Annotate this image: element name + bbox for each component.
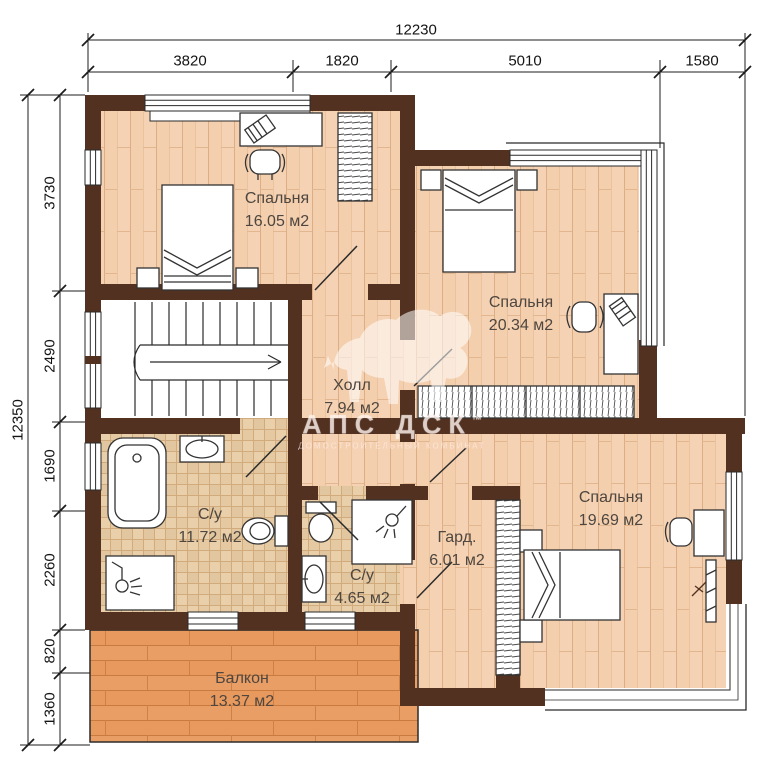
room-label-balcony: Балкон 13.37 м2	[210, 667, 274, 713]
wall	[288, 486, 318, 500]
wall	[85, 418, 240, 434]
dim-left-segment-3: 2260	[42, 553, 59, 586]
room-label-bedroom-1: Спальня 16.05 м2	[245, 187, 309, 233]
window-bedroom-3-east	[726, 472, 742, 560]
window-left-3	[85, 443, 101, 490]
room-label-bathroom-1: С/у 11.72 м2	[178, 503, 241, 549]
window-left-1	[85, 150, 101, 185]
room-name: Холл	[324, 374, 379, 397]
floor-stairs	[101, 300, 288, 418]
room-area: 7.94 м2	[324, 397, 379, 420]
wall	[415, 688, 545, 706]
nightstand-icon	[520, 620, 542, 642]
dim-top-segment-2: 5010	[508, 53, 541, 70]
nightstand-icon	[236, 268, 258, 288]
dim-top-segment-3: 1580	[685, 53, 718, 70]
room-name: Балкон	[210, 667, 274, 690]
nightstand-icon	[517, 170, 537, 190]
bathtub-icon	[108, 438, 166, 528]
floor-patch	[400, 442, 415, 484]
wardrobe-icon	[496, 500, 520, 675]
bed-icon	[524, 550, 620, 620]
toilet-icon	[306, 502, 336, 542]
wall	[472, 486, 520, 500]
wall	[366, 486, 428, 500]
room-label-bedroom-2: Спальня 20.34 м2	[489, 291, 553, 337]
window-left-2	[85, 312, 101, 408]
wardrobe-icon	[338, 113, 372, 201]
room-label-hall: Холл 7.94 м2	[324, 374, 379, 420]
wall	[288, 300, 302, 630]
room-area: 13.37 м2	[210, 690, 274, 713]
sink-icon	[180, 436, 224, 462]
wall	[415, 418, 745, 434]
nightstand-icon	[421, 170, 441, 190]
sink-icon	[302, 556, 326, 602]
room-label-wardrobe: Гард. 6.01 м2	[429, 526, 484, 572]
dim-top-segment-1: 1820	[325, 53, 358, 70]
dim-top-overall: 12230	[395, 22, 437, 39]
wall	[288, 418, 400, 434]
wardrobe-icon	[418, 386, 634, 418]
dim-left-segment-5: 1360	[42, 692, 59, 725]
nightstand-icon	[520, 530, 542, 552]
room-label-bathroom-2: С/у 4.65 м2	[334, 564, 389, 610]
room-area: 4.65 м2	[334, 587, 389, 610]
room-name: Гард.	[429, 526, 484, 549]
nightstand-icon	[137, 268, 159, 288]
wall	[400, 95, 415, 340]
dim-left-segment-2: 1690	[42, 449, 59, 482]
bed-icon	[443, 170, 515, 272]
room-name: Спальня	[245, 187, 309, 210]
room-name: Спальня	[489, 291, 553, 314]
window-bath-south-2	[305, 612, 355, 630]
room-area: 16.05 м2	[245, 210, 309, 233]
shower-icon	[352, 500, 412, 564]
bed-icon	[162, 185, 233, 290]
radiator-icon	[706, 560, 716, 622]
plan-drawing	[0, 0, 773, 782]
room-area: 6.01 м2	[429, 549, 484, 572]
floor-patch	[240, 418, 288, 434]
wall	[496, 675, 520, 689]
floor-plan: Спальня 16.05 м2 Спальня 20.34 м2 Холл 7…	[0, 0, 773, 782]
floor-patch	[312, 284, 368, 300]
room-name: С/у	[334, 564, 389, 587]
dim-left-overall: 12350	[10, 399, 27, 441]
wall	[85, 612, 415, 630]
shower-icon	[106, 556, 174, 610]
room-name: Спальня	[579, 486, 643, 509]
window-bath-south-1	[188, 612, 238, 630]
dim-left-segment-0: 3730	[42, 176, 59, 209]
toilet-icon	[242, 516, 288, 546]
floor-patch	[318, 486, 366, 500]
room-area: 11.72 м2	[178, 526, 241, 549]
room-area: 20.34 м2	[489, 314, 553, 337]
wall	[400, 390, 415, 442]
dim-top-segment-0: 3820	[173, 53, 206, 70]
dim-left-segment-1: 2490	[42, 339, 59, 372]
desk-icon	[694, 510, 724, 556]
floor-patch	[400, 560, 415, 604]
wall	[400, 150, 510, 166]
dim-left-segment-4: 820	[42, 638, 59, 663]
room-area: 19.69 м2	[579, 509, 643, 532]
room-label-bedroom-3: Спальня 19.69 м2	[579, 486, 643, 532]
room-name: С/у	[178, 503, 241, 526]
